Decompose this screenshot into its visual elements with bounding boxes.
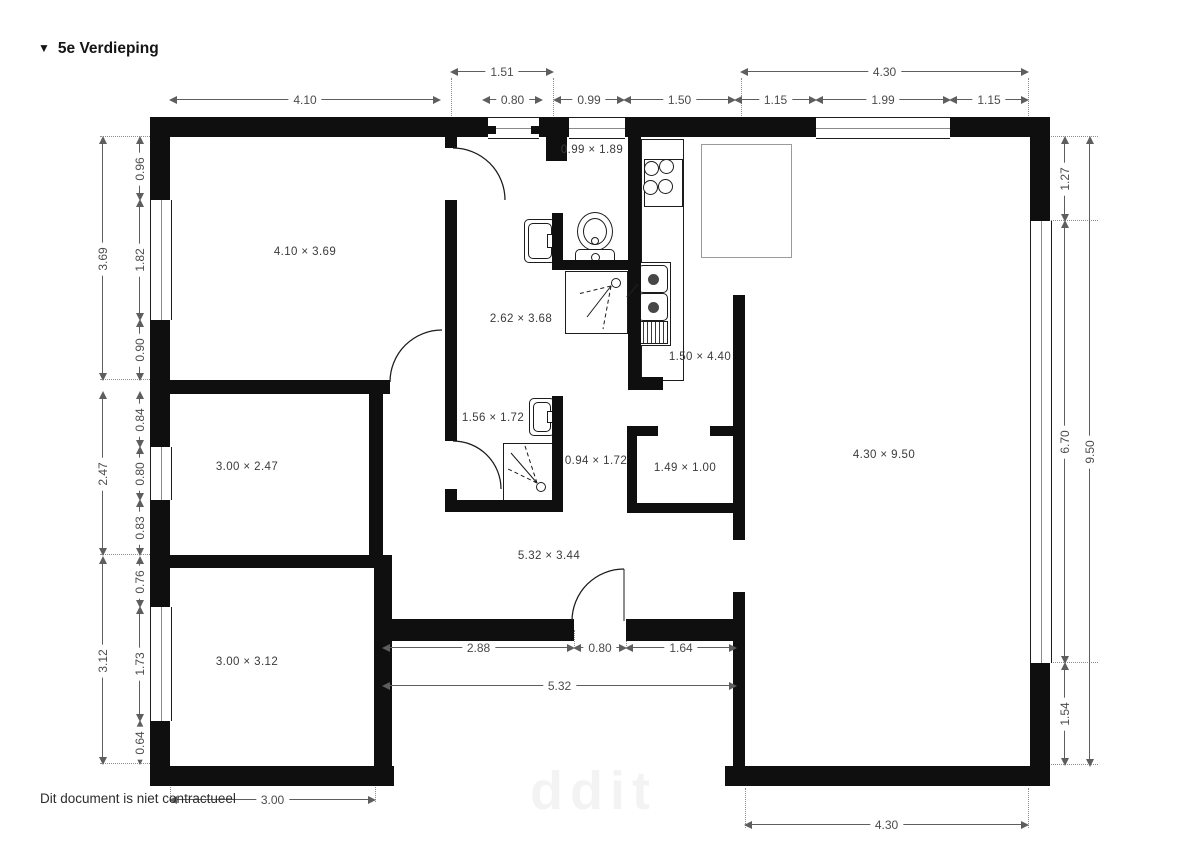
- floor-title-text: 5e Verdieping: [58, 40, 159, 57]
- dimension-horizontal: 0.80: [574, 642, 626, 654]
- dim-value: 2.88: [462, 641, 495, 655]
- dim-value: 1.54: [1058, 697, 1072, 730]
- room-size-label: 1.49 × 1.00: [654, 462, 716, 474]
- dimension-vertical: 1.54: [1059, 663, 1071, 765]
- dim-arrow-right: [1021, 68, 1029, 76]
- dim-arrow-up: [136, 606, 144, 614]
- dim-value: 5.32: [543, 679, 576, 693]
- dim-arrow-up: [1061, 662, 1069, 670]
- dim-value: 6.70: [1058, 425, 1072, 458]
- dimension-horizontal: 4.10: [170, 94, 440, 106]
- dim-value: 0.84: [133, 403, 147, 436]
- dim-arrow-left: [573, 644, 581, 652]
- dim-arrow-up: [136, 136, 144, 144]
- dim-value: 1.50: [663, 93, 696, 107]
- dim-arrow-left: [169, 96, 177, 104]
- dim-arrow-up: [136, 499, 144, 507]
- dim-value: 3.12: [96, 644, 110, 677]
- dim-value: 4.30: [868, 65, 901, 79]
- room-size-label: 0.94 × 1.72: [565, 455, 627, 467]
- dim-arrow-right: [535, 96, 543, 104]
- dim-arrow-down: [136, 548, 144, 556]
- dimension-horizontal: 1.99: [816, 94, 950, 106]
- dim-arrow-down: [1061, 758, 1069, 766]
- dimension-vertical: 0.84: [134, 392, 146, 447]
- page-title: ▼5e Verdieping: [38, 40, 159, 58]
- dim-arrow-up: [136, 319, 144, 327]
- dimension-vertical: 0.76: [134, 557, 146, 607]
- dim-arrow-left: [625, 644, 633, 652]
- dimension-vertical: 0.80: [134, 447, 146, 500]
- room-size-label: 1.50 × 4.40: [669, 351, 731, 363]
- window: [150, 200, 172, 320]
- dim-value: 1.51: [485, 65, 518, 79]
- door-swing-arc: [390, 330, 442, 382]
- dim-arrow-left: [382, 644, 390, 652]
- dimension-horizontal: 4.30: [741, 66, 1028, 78]
- shower-spray-line: [506, 468, 537, 483]
- floorplan-canvas: ▼5e Verdieping ddit Dit document is niet…: [0, 0, 1200, 848]
- room-size-label: 4.10 × 3.69: [274, 246, 336, 258]
- dim-arrow-up: [1086, 136, 1094, 144]
- tap-mark: [627, 284, 638, 297]
- dim-arrow-up: [99, 136, 107, 144]
- dimension-vertical: 1.73: [134, 607, 146, 721]
- dim-arrow-down: [136, 373, 144, 381]
- dim-arrow-down: [99, 548, 107, 556]
- dim-arrow-right: [368, 796, 376, 804]
- dim-value: 3.00: [256, 793, 289, 807]
- dim-arrow-right: [433, 96, 441, 104]
- window: [150, 447, 172, 500]
- dimension-horizontal: 1.15: [735, 94, 816, 106]
- dim-arrow-up: [1061, 136, 1069, 144]
- dim-arrow-left: [815, 96, 823, 104]
- dim-value: 3.69: [96, 242, 110, 275]
- dim-value: 4.10: [288, 93, 321, 107]
- dim-arrow-left: [553, 96, 561, 104]
- window: [569, 117, 625, 139]
- dim-arrow-right: [1021, 821, 1029, 829]
- shower-spray-line: [525, 446, 537, 483]
- dim-arrow-left: [482, 96, 490, 104]
- room-size-label: 3.00 × 3.12: [216, 656, 278, 668]
- triangle-marker-icon: ▼: [38, 41, 50, 55]
- dimension-horizontal: 1.15: [950, 94, 1028, 106]
- dim-arrow-right: [546, 68, 554, 76]
- dim-arrow-up: [1061, 220, 1069, 228]
- dim-arrow-up: [99, 556, 107, 564]
- dim-arrow-up: [136, 556, 144, 564]
- room-size-label: 3.00 × 2.47: [216, 461, 278, 473]
- dim-arrow-right: [729, 644, 737, 652]
- dim-value: 0.80: [496, 93, 529, 107]
- dim-value: 1.15: [972, 93, 1005, 107]
- dim-value: 0.96: [133, 152, 147, 185]
- dim-value: 0.64: [133, 726, 147, 759]
- dim-arrow-up: [136, 391, 144, 399]
- dimension-vertical: 9.50: [1084, 137, 1096, 766]
- dimension-horizontal: 5.32: [383, 680, 736, 692]
- dimension-horizontal: 1.51: [451, 66, 553, 78]
- dimension-vertical: 0.64: [134, 721, 146, 764]
- dimension-vertical: 3.69: [97, 137, 109, 380]
- dim-arrow-left: [740, 68, 748, 76]
- dim-arrow-left: [623, 96, 631, 104]
- dim-arrow-down: [99, 757, 107, 765]
- dimension-vertical: 3.12: [97, 557, 109, 764]
- shower-spray-line: [603, 286, 611, 329]
- dimension-vertical: 6.70: [1059, 221, 1071, 663]
- dim-arrow-left: [949, 96, 957, 104]
- dim-value: 2.47: [96, 457, 110, 490]
- dim-value: 0.76: [133, 565, 147, 598]
- room-size-label: 5.32 × 3.44: [518, 550, 580, 562]
- dim-value: 0.80: [133, 457, 147, 490]
- dim-arrow-up: [99, 391, 107, 399]
- dimension-horizontal: 0.99: [554, 94, 624, 106]
- dim-value: 0.80: [583, 641, 616, 655]
- room-size-label: 4.30 × 9.50: [853, 449, 915, 461]
- dim-value: 9.50: [1083, 435, 1097, 468]
- window: [1030, 221, 1052, 663]
- window: [150, 607, 172, 721]
- dim-value: 4.30: [870, 818, 903, 832]
- dim-value: 0.99: [572, 93, 605, 107]
- room-size-label: 0.99 × 1.89: [561, 144, 623, 156]
- window: [816, 117, 950, 139]
- dimension-vertical: 0.83: [134, 500, 146, 555]
- dimension-horizontal: 0.80: [483, 94, 542, 106]
- dimension-vertical: 2.47: [97, 392, 109, 555]
- dim-arrow-right: [729, 682, 737, 690]
- dim-value: 0.90: [133, 333, 147, 366]
- room-size-label: 2.62 × 3.68: [490, 313, 552, 325]
- dim-value: 1.99: [866, 93, 899, 107]
- dim-arrow-up: [136, 199, 144, 207]
- dim-arrow-down: [99, 373, 107, 381]
- dim-value: 1.82: [133, 243, 147, 276]
- door-swing-arc: [572, 569, 624, 621]
- dimension-vertical: 1.27: [1059, 137, 1071, 221]
- dimension-vertical: 1.82: [134, 200, 146, 320]
- dim-value: 0.83: [133, 511, 147, 544]
- dim-arrow-left: [744, 821, 752, 829]
- dim-arrow-right: [1021, 96, 1029, 104]
- dim-arrow-left: [382, 682, 390, 690]
- dimension-vertical: 0.90: [134, 320, 146, 380]
- dim-value: 1.15: [759, 93, 792, 107]
- dim-value: 1.64: [664, 641, 697, 655]
- dim-value: 1.73: [133, 647, 147, 680]
- door-swing-arc: [453, 441, 501, 489]
- dim-arrow-left: [450, 68, 458, 76]
- dim-arrow-down: [1086, 759, 1094, 767]
- dimension-horizontal: 4.30: [745, 819, 1028, 831]
- room-size-label: 1.56 × 1.72: [462, 412, 524, 424]
- dimension-horizontal: 2.88: [383, 642, 574, 654]
- dimension-horizontal: 1.50: [624, 94, 735, 106]
- door-swing-arc: [453, 148, 505, 200]
- door-jamb: [531, 126, 539, 134]
- shower-spray-line: [587, 286, 611, 317]
- dim-arrow-up: [136, 446, 144, 454]
- door-jamb: [488, 126, 496, 134]
- dim-arrow-left: [734, 96, 742, 104]
- disclaimer-text: Dit document is niet contractueel: [40, 791, 236, 806]
- dimension-vertical: 0.96: [134, 137, 146, 200]
- dimension-horizontal: 1.64: [626, 642, 736, 654]
- dim-value: 1.27: [1058, 162, 1072, 195]
- shower-spray-line: [511, 453, 537, 483]
